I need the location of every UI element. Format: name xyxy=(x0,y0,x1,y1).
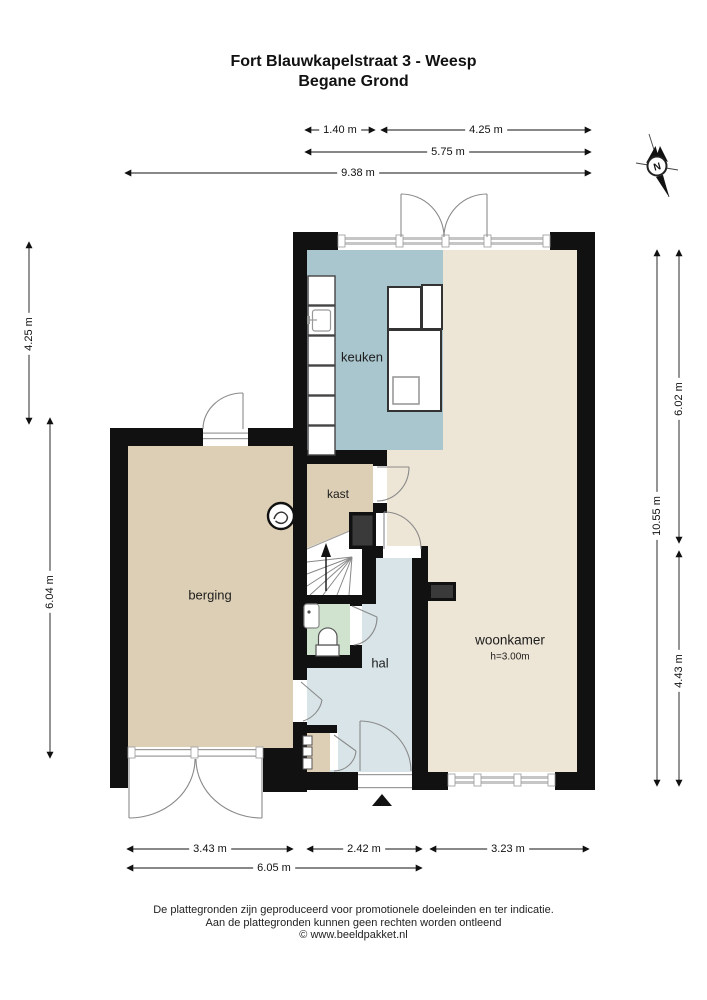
garden-doors xyxy=(401,194,487,237)
berging-floor xyxy=(128,446,293,748)
boiler-icon xyxy=(268,503,294,529)
floorplan-page: N Fort Blauwkapelstraat 3 - Weesp xyxy=(0,0,707,1000)
berging-top-door xyxy=(203,393,243,429)
entrance-marker xyxy=(372,794,392,806)
island-hob xyxy=(393,377,419,404)
toilet-icon xyxy=(316,628,339,656)
fontein-icon xyxy=(304,604,319,628)
compass-rose: N xyxy=(636,134,678,197)
kitchen-counter xyxy=(308,276,335,455)
floor-plan-svg: N xyxy=(0,0,707,1000)
berging-double-doors xyxy=(129,758,262,818)
meter-boxes xyxy=(303,736,312,769)
floor-areas xyxy=(128,250,577,772)
